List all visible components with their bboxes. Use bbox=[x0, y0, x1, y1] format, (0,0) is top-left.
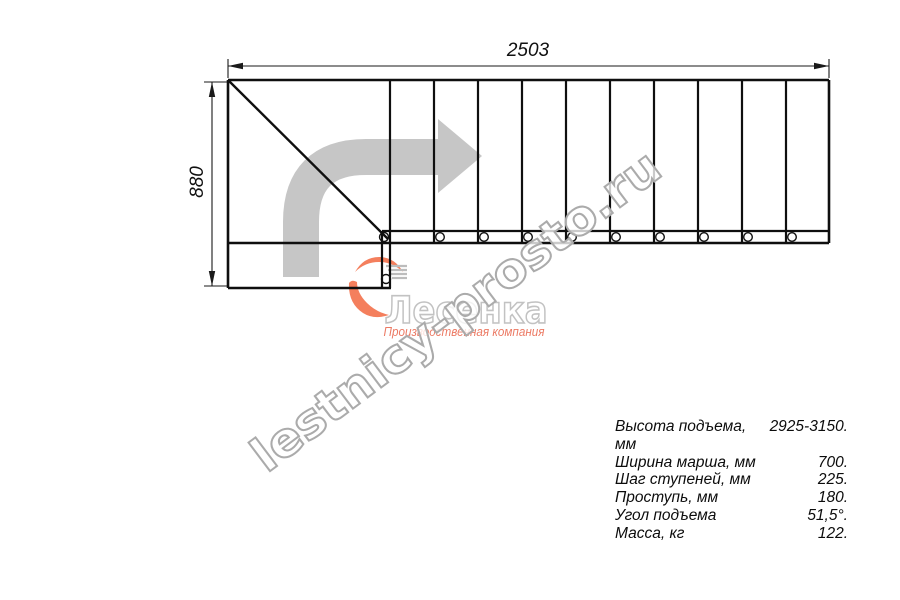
direction-arrow bbox=[301, 119, 482, 277]
spec-value: 2925-3150. bbox=[770, 418, 848, 454]
fastener-circle bbox=[656, 233, 665, 242]
spec-value: 180. bbox=[818, 489, 848, 507]
spec-row: Проступь, мм 180. bbox=[615, 489, 848, 507]
fastener-circle bbox=[480, 233, 489, 242]
spec-row: Масса, кг 122. bbox=[615, 525, 848, 543]
spec-row: Высота подъема, мм 2925-3150. bbox=[615, 418, 848, 454]
spec-value: 51,5°. bbox=[807, 507, 848, 525]
spec-label: Шаг ступеней, мм bbox=[615, 471, 751, 489]
spec-value: 225. bbox=[818, 471, 848, 489]
direction-arrow-head bbox=[438, 119, 482, 193]
spec-label: Проступь, мм bbox=[615, 489, 718, 507]
spec-value: 122. bbox=[818, 525, 848, 543]
fastener-circle bbox=[788, 233, 797, 242]
fastener-circle bbox=[612, 233, 621, 242]
fastener-circle bbox=[436, 233, 445, 242]
spec-label: Ширина марша, мм bbox=[615, 454, 756, 472]
spec-row: Ширина марша, мм 700. bbox=[615, 454, 848, 472]
fastener-circle bbox=[744, 233, 753, 242]
spec-row: Угол подъема 51,5°. bbox=[615, 507, 848, 525]
height-dim-label: 880 bbox=[187, 166, 208, 198]
spec-label: Масса, кг bbox=[615, 525, 684, 543]
spec-table: Высота подъема, мм 2925-3150. Ширина мар… bbox=[615, 418, 848, 543]
stair-drawing-page: Лесенка Производственная компания bbox=[0, 0, 900, 600]
spec-row: Шаг ступеней, мм 225. bbox=[615, 471, 848, 489]
spec-label: Угол подъема bbox=[615, 507, 716, 525]
spec-label: Высота подъема, мм bbox=[615, 418, 770, 454]
width-dim-label: 2503 bbox=[506, 40, 550, 61]
fastener-circle bbox=[700, 233, 709, 242]
spec-value: 700. bbox=[818, 454, 848, 472]
